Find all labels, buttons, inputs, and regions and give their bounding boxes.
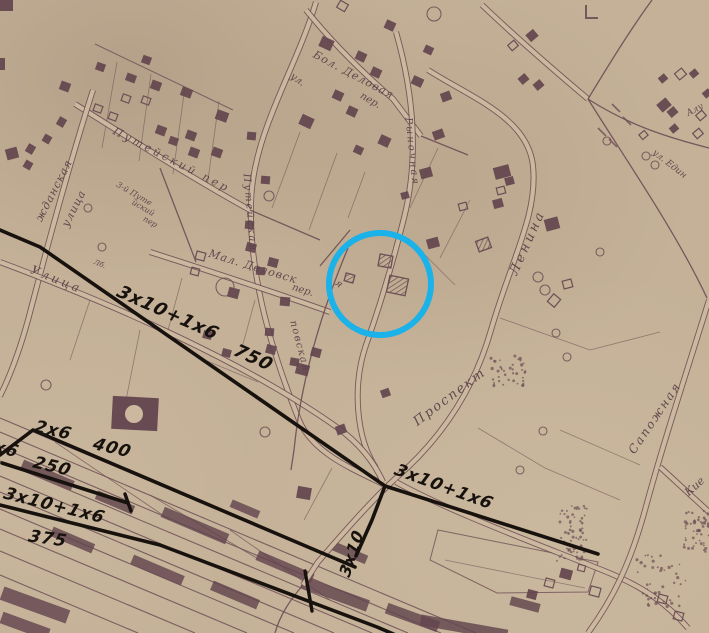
vegetation-dot — [576, 508, 578, 510]
vegetation-dot — [576, 551, 578, 553]
building — [508, 40, 519, 51]
building — [261, 176, 271, 185]
vegetation-dot — [690, 523, 692, 525]
vegetation-dot — [652, 560, 655, 563]
vegetation-dot — [499, 359, 501, 361]
parcel-line — [440, 200, 470, 258]
vegetation-dot — [522, 377, 524, 379]
vegetation-dot — [704, 550, 707, 553]
building — [658, 73, 669, 84]
road-single — [250, 210, 320, 240]
vegetation-dot — [515, 372, 518, 375]
vegetation-dot — [683, 546, 686, 549]
road-double — [303, 70, 534, 585]
vegetation-dot — [499, 366, 501, 368]
circle-symbol — [603, 137, 611, 145]
building — [384, 19, 397, 31]
vegetation-dot — [658, 591, 661, 594]
vegetation-dot — [700, 521, 702, 523]
building — [280, 297, 291, 307]
vegetation-dot — [560, 537, 562, 539]
building — [496, 186, 506, 195]
building — [426, 237, 440, 250]
parcel-line — [590, 332, 660, 350]
building — [577, 564, 585, 572]
vegetation-dot — [566, 547, 568, 549]
vegetation-dot — [637, 571, 639, 573]
vegetation-dot — [556, 560, 558, 562]
road-hatch-mark — [612, 104, 620, 112]
vegetation-dot — [571, 530, 574, 533]
vegetation-dot — [517, 383, 519, 385]
building — [141, 55, 152, 66]
vegetation-dot — [575, 537, 577, 539]
map-viewport: жданскаяулицаПутейский пер3-й Путейскийп… — [0, 0, 709, 633]
vegetation-dot — [569, 520, 572, 523]
building — [108, 112, 118, 121]
parcel-line — [478, 428, 545, 468]
vegetation-dot — [642, 592, 644, 594]
vegetation-dot — [559, 555, 561, 557]
vegetation-dot — [687, 547, 690, 550]
vegetation-dot — [512, 364, 514, 366]
railway-car — [130, 555, 185, 586]
building — [195, 251, 206, 261]
vegetation-dot — [670, 602, 673, 605]
building — [0, 0, 13, 11]
vegetation-dot — [573, 551, 575, 553]
hatched-building — [378, 254, 393, 268]
building — [95, 62, 106, 73]
vegetation-dot — [691, 547, 694, 550]
vegetation-dot — [699, 540, 701, 542]
vegetation-dot — [676, 576, 679, 579]
street-label: я — [333, 278, 345, 291]
vegetation-dot — [663, 601, 665, 603]
vegetation-dot — [519, 357, 522, 360]
vegetation-dot — [678, 595, 680, 597]
vegetation-dot — [576, 555, 579, 558]
road-hatch-mark — [598, 128, 606, 136]
vegetation-dot — [512, 372, 514, 374]
building — [532, 79, 544, 91]
building — [353, 144, 365, 155]
building — [504, 176, 515, 186]
road-single — [421, 136, 468, 155]
vegetation-dot — [498, 380, 500, 382]
building — [25, 143, 36, 155]
vegetation-dot — [570, 525, 572, 527]
road-surface — [303, 70, 534, 585]
vegetation-dot — [646, 583, 649, 586]
vegetation-dot — [704, 547, 707, 550]
vegetation-dot — [661, 585, 664, 588]
circle-symbol — [98, 243, 106, 251]
vegetation-dot — [567, 549, 570, 552]
circle-symbol — [84, 204, 92, 212]
vegetation-dot — [685, 525, 687, 527]
vegetation-dot — [649, 583, 651, 585]
building — [298, 114, 314, 129]
circle-symbol — [642, 152, 650, 160]
street-label: Бол. Деловая — [310, 48, 396, 102]
vegetation-dot — [581, 527, 583, 529]
vegetation-dot — [654, 602, 657, 605]
building — [544, 578, 555, 588]
building — [265, 328, 275, 337]
building — [669, 123, 680, 134]
circle-symbol — [216, 278, 234, 296]
vegetation-dot — [578, 508, 580, 510]
building — [411, 75, 425, 88]
hatched-building — [476, 237, 492, 252]
vegetation-dot — [579, 529, 582, 532]
vegetation-dot — [660, 567, 663, 570]
circle-symbol — [41, 380, 51, 390]
building — [526, 589, 538, 600]
vegetation-dot — [492, 378, 494, 380]
building — [155, 125, 167, 137]
vegetation-dot — [490, 367, 493, 370]
building — [562, 279, 573, 289]
building — [5, 147, 19, 161]
vegetation-dot — [651, 566, 654, 569]
building — [589, 586, 601, 597]
vegetation-dot — [693, 521, 696, 524]
building — [559, 568, 573, 581]
building — [440, 91, 452, 103]
block-outline — [95, 44, 233, 110]
vegetation-dot — [665, 605, 668, 608]
vegetation-dot — [512, 379, 515, 382]
vegetation-dot — [580, 557, 583, 560]
building — [525, 29, 538, 42]
vegetation-dot — [703, 542, 705, 544]
building — [0, 58, 5, 70]
vegetation-dot — [650, 597, 652, 599]
building — [432, 128, 445, 140]
vegetation-dot — [647, 588, 649, 590]
vegetation-dot — [688, 511, 690, 513]
vegetation-dot — [700, 533, 702, 535]
circle-symbol — [552, 329, 560, 337]
vegetation-dot — [570, 551, 573, 554]
building — [296, 486, 312, 500]
street-label: пер — [141, 214, 159, 229]
vegetation-dot — [489, 357, 492, 360]
vegetation-dot — [669, 599, 671, 601]
building — [59, 81, 71, 93]
vegetation-dot — [647, 598, 650, 601]
building — [42, 134, 53, 145]
spec-annotation: 2х6 — [0, 435, 22, 462]
building — [423, 44, 435, 55]
vegetation-dot — [635, 558, 638, 561]
vegetation-dot — [572, 536, 575, 539]
vegetation-dot — [581, 522, 584, 525]
vegetation-dot — [581, 517, 584, 520]
building — [150, 80, 162, 92]
street-label: Лб. — [92, 258, 107, 270]
vegetation-dot — [685, 580, 687, 582]
building — [689, 68, 700, 79]
vegetation-dot — [703, 544, 705, 546]
circle-symbol — [596, 248, 604, 256]
vegetation-dot — [698, 516, 700, 518]
vegetation-dot — [647, 603, 649, 605]
building — [492, 198, 504, 209]
vegetation-dot — [585, 539, 587, 541]
circle-symbol — [540, 285, 550, 295]
vegetation-dot — [657, 566, 659, 568]
vegetation-dot — [574, 516, 576, 518]
street-labels-layer: жданскаяулицаПутейский пер3-й Путейскийп… — [29, 48, 708, 500]
circle-symbol — [651, 161, 659, 169]
vegetation-dot — [683, 543, 685, 545]
vegetation-dot — [559, 513, 561, 515]
vegetation-dot — [641, 561, 643, 563]
vegetation-dot — [680, 583, 682, 585]
building — [332, 89, 345, 101]
building — [310, 347, 322, 358]
vegetation-dot — [685, 539, 687, 541]
vegetation-dot — [685, 527, 687, 529]
vegetation-dot — [498, 376, 500, 378]
vegetation-dot — [696, 533, 698, 535]
vegetation-dot — [561, 510, 563, 512]
building — [337, 0, 349, 11]
highlight-circle-annotation — [329, 233, 431, 335]
vegetation-dot — [503, 370, 505, 372]
vegetation-dot — [564, 531, 567, 534]
building — [185, 130, 197, 142]
parcel-line — [348, 172, 365, 218]
building — [180, 86, 193, 98]
vegetation-dot — [703, 516, 706, 519]
spec-annotation: 2х6 — [31, 417, 74, 444]
vegetation-dot — [668, 566, 671, 569]
vegetation-dot — [583, 539, 585, 541]
vegetation-dot — [702, 525, 705, 528]
circle-symbol — [516, 466, 524, 474]
vegetation-dot — [566, 510, 568, 512]
vegetation-dot — [693, 545, 695, 547]
vegetation-dot — [493, 383, 495, 385]
vegetation-dot — [703, 510, 705, 512]
vegetation-dot — [697, 518, 700, 521]
hatched-building — [386, 275, 408, 296]
buildings-layer — [0, 0, 709, 621]
vegetation-dot — [563, 513, 565, 515]
building — [346, 105, 359, 117]
vegetation-dot — [645, 594, 648, 597]
vegetation-dot — [524, 370, 527, 373]
vegetation-dot — [654, 591, 657, 594]
vegetation-dot — [570, 540, 572, 542]
building — [693, 128, 704, 139]
vegetation-dot — [586, 508, 588, 510]
vegetation-dot — [511, 368, 513, 370]
building — [141, 96, 151, 105]
road-double — [588, 300, 709, 633]
building — [547, 294, 560, 307]
hatched-building — [344, 273, 355, 283]
vegetation-dot — [584, 507, 586, 509]
vegetation-dot — [509, 367, 512, 370]
building — [56, 116, 67, 128]
map-svg: жданскаяулицаПутейский пер3-й Путейскийп… — [0, 0, 709, 633]
street-label: ул. Един — [649, 147, 688, 181]
vegetation-dot — [507, 379, 509, 381]
building — [125, 73, 137, 84]
vegetation-dot — [700, 542, 703, 545]
corner-mark — [586, 5, 598, 18]
vegetation-dot — [571, 513, 574, 516]
building — [674, 68, 686, 80]
circle-symbol — [563, 353, 571, 361]
vegetation-dot — [502, 384, 504, 386]
vegetation-dot — [693, 530, 695, 532]
vegetation-dot — [493, 382, 495, 384]
building — [247, 132, 257, 141]
building — [93, 104, 103, 113]
vegetation-dot — [578, 538, 580, 540]
vegetation-dot — [579, 536, 582, 539]
building — [419, 167, 433, 180]
circle-symbol — [533, 272, 543, 282]
vegetation-dot — [692, 536, 695, 539]
building — [190, 267, 200, 276]
spec-annotation: 375 — [26, 527, 69, 552]
vegetation-dot — [521, 369, 523, 371]
building — [380, 388, 391, 399]
parcel-line — [70, 300, 90, 360]
circle-symbol — [427, 7, 441, 21]
vegetation-dot — [579, 520, 581, 522]
vegetation-dot — [521, 384, 524, 387]
vegetation-dot — [685, 537, 687, 539]
vegetation-dot — [581, 532, 584, 535]
vegetation-dot — [678, 604, 681, 607]
vegetation-dot — [494, 360, 497, 363]
building — [188, 147, 200, 159]
vegetation-dot — [513, 354, 516, 357]
highlight-layer — [329, 233, 431, 335]
vegetation-dot — [647, 554, 649, 556]
vegetation-dot — [559, 520, 562, 523]
vegetation-dot — [645, 555, 647, 557]
vegetation-dot — [563, 557, 565, 559]
station-roundhouse — [125, 405, 143, 423]
parcel-line — [309, 153, 337, 230]
building — [215, 109, 230, 123]
vegetation-dot — [566, 515, 569, 518]
building — [377, 134, 391, 148]
building — [121, 94, 131, 103]
road-single — [588, 0, 652, 99]
railway-car — [210, 581, 260, 610]
road-single — [160, 168, 196, 262]
circle-symbol — [264, 191, 274, 201]
building — [355, 50, 368, 62]
vegetation-dot — [497, 370, 500, 373]
vegetation-dot — [647, 604, 650, 607]
vegetation-dot — [659, 554, 662, 557]
vegetation-dot — [571, 505, 573, 507]
vegetation-dot — [584, 514, 586, 516]
vegetation-dot — [567, 532, 570, 535]
parcel-line — [500, 318, 590, 350]
building — [517, 73, 529, 85]
circle-symbol — [539, 427, 547, 435]
vegetation-dot — [583, 505, 585, 507]
building — [702, 88, 709, 99]
vegetation-dot — [673, 582, 675, 584]
street-label: Путейская — [241, 172, 259, 252]
vegetation-dot — [504, 373, 507, 376]
parcel-line — [545, 468, 620, 500]
vegetation-dot — [569, 529, 572, 532]
vegetation-dot — [651, 556, 653, 558]
vegetation-dot — [703, 521, 706, 524]
vegetation-dot — [643, 565, 646, 568]
vegetation-dot — [691, 512, 694, 515]
vegetation-dot — [663, 569, 665, 571]
vegetation-dot — [696, 529, 699, 532]
vegetation-dot — [685, 522, 688, 525]
vegetation-dot — [679, 564, 681, 566]
vegetation-dot — [523, 362, 525, 364]
street-label: Рыночная — [402, 116, 420, 187]
railway-track — [0, 551, 195, 633]
vegetation-dot — [671, 565, 673, 567]
railway-car — [161, 507, 230, 544]
circle-symbol — [260, 427, 270, 437]
vegetation-dot — [561, 554, 563, 556]
vegetation-dot — [522, 380, 524, 382]
building — [23, 160, 34, 171]
vegetation-dot — [695, 542, 697, 544]
building — [639, 130, 648, 139]
vegetation-dot — [685, 512, 688, 515]
street-label: Алу — [684, 101, 706, 119]
vegetation-dot — [654, 597, 656, 599]
vegetation-dot — [675, 573, 677, 575]
parcel-line — [272, 132, 300, 208]
